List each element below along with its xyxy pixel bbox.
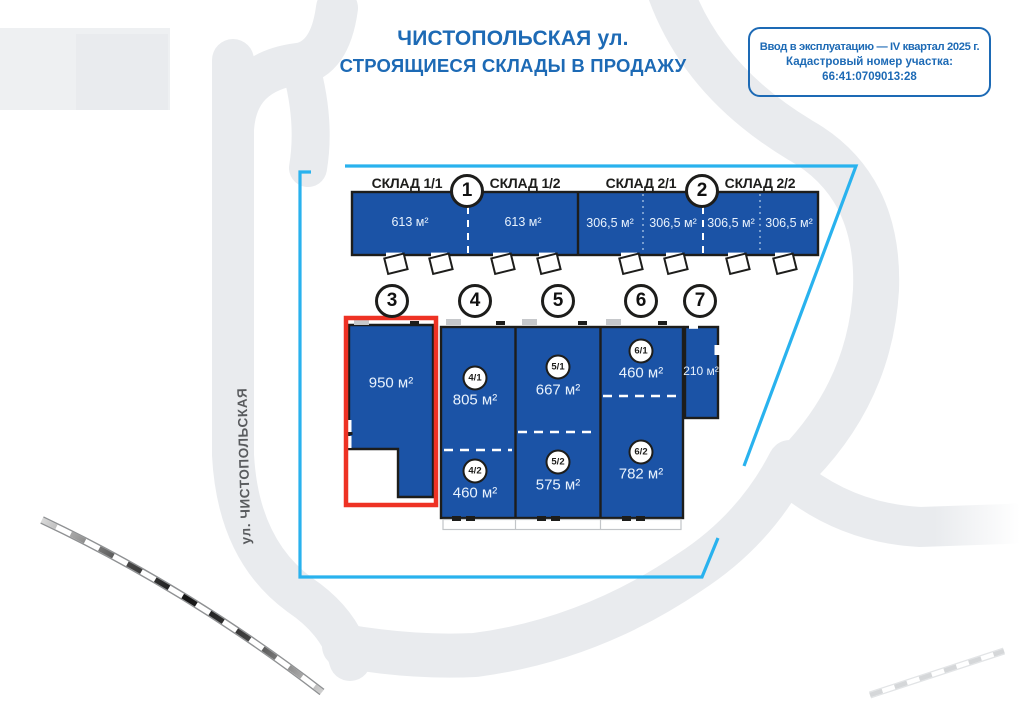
plan-title-subtitle: СТРОЯЩИЕСЯ СКЛАДЫ В ПРОДАЖУ — [340, 55, 687, 77]
door-symbol — [384, 254, 407, 274]
building-number-7: 7 — [683, 284, 717, 318]
door-symbol — [773, 254, 796, 274]
unit-area-3: 950 м² — [369, 375, 414, 392]
unit-badge-6-1: 6/1 — [629, 339, 654, 364]
loading-apron — [443, 520, 681, 530]
doors — [384, 254, 796, 274]
unit-badge-5-2: 5/2 — [546, 450, 571, 475]
unit-area-1-1: 613 м² — [391, 215, 428, 229]
railway-core — [870, 651, 1004, 695]
building-number-1: 1 — [450, 174, 484, 208]
unit-area-6-1: 460 м² — [619, 365, 664, 382]
building-number-6: 6 — [624, 284, 658, 318]
door-symbol — [619, 254, 642, 274]
building-number-3: 3 — [375, 284, 409, 318]
commissioning-date: Ввод в эксплуатацию — IV квартал 2025 г. — [750, 41, 989, 53]
unit-area-5-1: 667 м² — [536, 382, 581, 399]
site-map-canvas — [0, 0, 1024, 724]
unit-area-5-2: 575 м² — [536, 477, 581, 494]
site-plan: ЧИСТОПОЛЬСКАЯ ул. СТРОЯЩИЕСЯ СКЛАДЫ В ПР… — [0, 0, 1024, 724]
unit-area-2-2a: 306,5 м² — [707, 216, 755, 230]
cadastral-label: Кадастровый номер участка: — [750, 56, 989, 68]
unit-area-1-2: 613 м² — [504, 215, 541, 229]
door-symbol — [429, 254, 452, 274]
building-number-4: 4 — [458, 284, 492, 318]
railway-track-faint — [870, 651, 1004, 695]
building-number-5: 5 — [541, 284, 575, 318]
unit-area-4-1: 805 м² — [453, 392, 498, 409]
unit-badge-4-1: 4/1 — [463, 366, 488, 391]
door-symbol — [664, 254, 687, 274]
unit-area-4-2: 460 м² — [453, 485, 498, 502]
road-segment — [300, 64, 311, 168]
building-number-2: 2 — [685, 174, 719, 208]
info-box: Ввод в эксплуатацию — IV квартал 2025 г.… — [748, 27, 991, 97]
plan-title-street: ЧИСТОПОЛЬСКАЯ ул. — [340, 27, 687, 51]
unit-badge-5-1: 5/1 — [546, 355, 571, 380]
warehouse-label-1-2: СКЛАД 1/2 — [490, 175, 561, 191]
road-segment — [788, 475, 1024, 527]
unit-badge-4-2: 4/2 — [463, 459, 488, 484]
warehouse-label-2-2: СКЛАД 2/2 — [725, 175, 796, 191]
unit-area-6-2: 782 м² — [619, 466, 664, 483]
unit-area-2-2b: 306,5 м² — [765, 216, 813, 230]
unit-badge-6-2: 6/2 — [629, 440, 654, 465]
unit-area-2-1a: 306,5 м² — [586, 216, 634, 230]
warehouse-label-2-1: СКЛАД 2/1 — [606, 175, 677, 191]
unit-area-2-1b: 306,5 м² — [649, 216, 697, 230]
door-symbol — [726, 254, 749, 274]
road-patch — [76, 34, 168, 110]
cadastral-number: 66:41:0709013:28 — [750, 71, 989, 83]
plan-title: ЧИСТОПОЛЬСКАЯ ул. СТРОЯЩИЕСЯ СКЛАДЫ В ПР… — [340, 27, 687, 77]
unit-area-7: 210 м² — [683, 364, 719, 378]
warehouse-label-1-1: СКЛАД 1/1 — [372, 175, 443, 191]
building-3-shape — [349, 325, 433, 497]
door-symbol — [537, 254, 560, 274]
door-symbol — [491, 254, 514, 274]
buildings — [349, 192, 818, 518]
